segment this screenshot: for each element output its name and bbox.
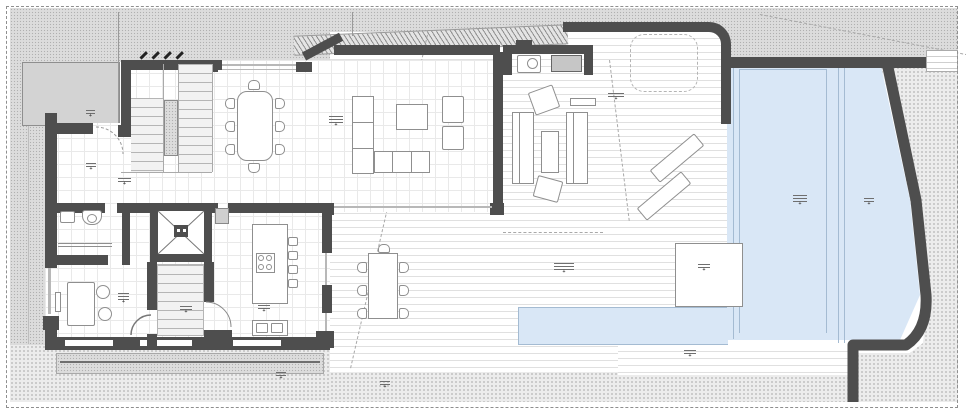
elevation-marker: +: [86, 163, 96, 171]
room-label: +: [258, 305, 270, 313]
pool-label: +: [864, 198, 874, 206]
elevation-marker: +: [86, 110, 95, 118]
area-label: +: [698, 264, 710, 272]
room-label: +: [118, 178, 131, 186]
elevation-marker: +: [684, 350, 696, 358]
room-label: +: [180, 306, 192, 314]
property-boundary: [6, 6, 958, 408]
room-label: +: [118, 293, 129, 304]
floor-plan-canvas: +++++++++++++++: [0, 0, 966, 416]
area-label: +: [554, 263, 574, 274]
pool-label: +: [793, 195, 807, 206]
room-label: +: [329, 116, 343, 127]
elevation-marker: +: [276, 372, 286, 380]
elevation-marker: +: [380, 381, 390, 389]
furniture-label: +: [608, 93, 624, 101]
